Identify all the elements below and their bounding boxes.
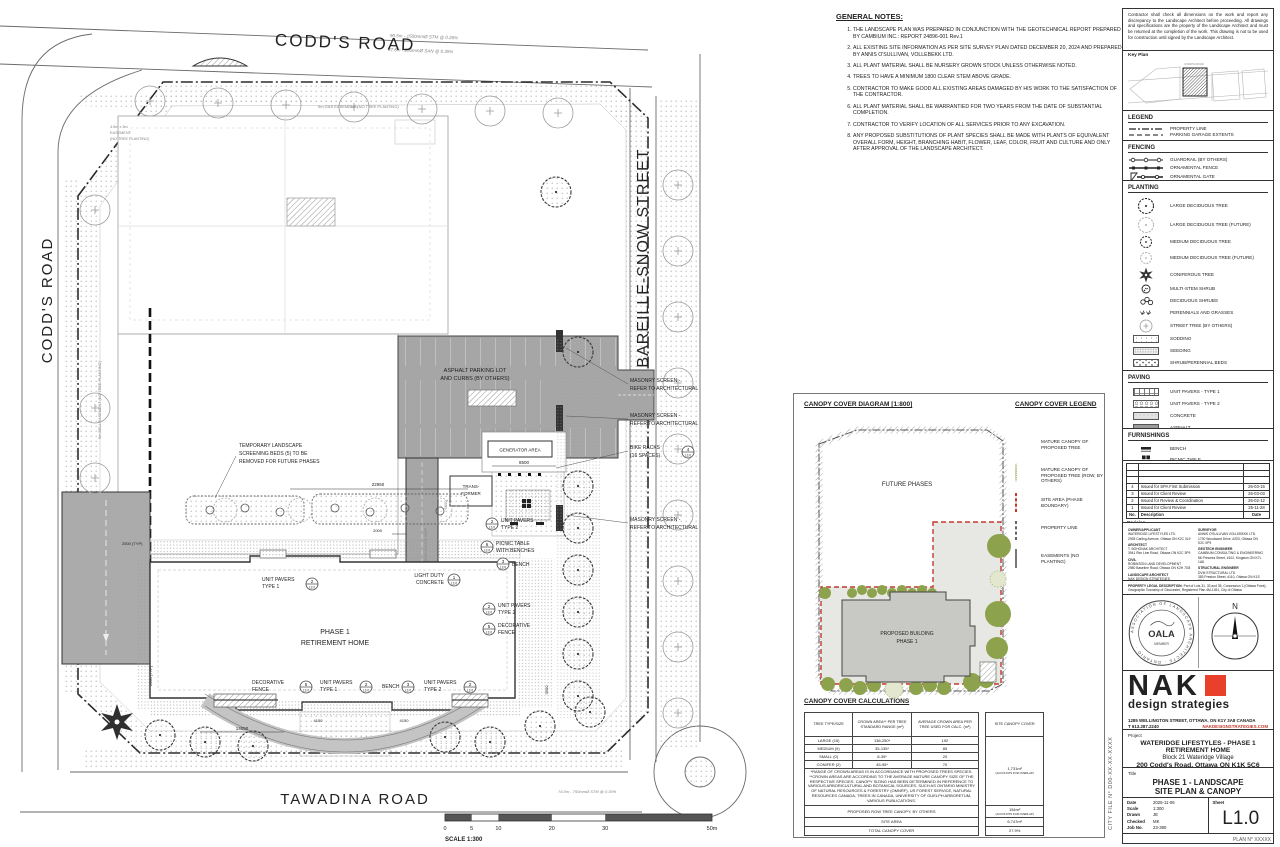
paving-section: PAVING UNIT PAVERS - TYPE 1 UNIT PAVERS … [1123,371,1273,429]
cell: 35-135* [853,745,912,753]
svg-text:L3.0: L3.0 [685,453,691,457]
callout-bubble: 4L3.0 [682,446,694,458]
seal-signature [1150,621,1174,625]
medium-deciduous-tree-icon [1128,235,1164,249]
callout-bubble: 6L3.0 [481,541,493,553]
rev-no: 3 [1127,490,1139,497]
ornamental-fence-icon [1128,164,1164,172]
cell: 136-250* [853,737,912,745]
fencing-label: ORNAMENTAL GATE [1170,174,1215,179]
perennials-grasses-icon [1128,308,1164,317]
project-label: Project [1128,733,1268,738]
large-deciduous-tree-icon [1128,197,1164,215]
site-plan-drawing: ASPHALT PARKING LOT AND CURBS (BY OTHERS… [0,0,795,847]
rev-date: 25-11-28 [1244,504,1270,511]
callout-label: UNIT PAVERS [424,680,457,686]
firm-website: NAKDESIGNSTRATEGIES.COM [1202,724,1268,729]
furnishings-item: BENCH [1128,444,1268,454]
fields-section: Date2025-11-06 Scale1:300 DrawnJE Checke… [1123,798,1273,834]
cell: 70 [911,761,978,769]
svg-text:L3.0: L3.0 [486,610,492,614]
sheet-title-1: PHASE 1 - LANDSCAPE [1128,778,1268,787]
svg-text:L3.0: L3.0 [467,688,473,692]
scale-bar [445,814,712,821]
dim-2000: 2000 [373,528,383,533]
paving-item: CONCRETE [1128,410,1268,422]
note-item: CONTRACTOR TO MAKE GOOD ALL EXISTING ARE… [853,86,1126,100]
callout-bubble: 5L3.0 [483,623,495,635]
street-tree-icon [1128,319,1164,333]
planting-label: LARGE DECIDUOUS TREE [1170,203,1228,208]
fencing-label: GUARDRAIL (BY OTHERS) [1170,157,1227,162]
cell: MEDIUM (9) [805,745,853,753]
consultant-addr: 2980 Baseline Road, Ottawa ON K2H 7G8 [1128,566,1195,570]
bike-label2: (16 SPACES) [630,453,661,459]
general-notes-title: GENERAL NOTES: [836,12,1126,21]
rev-header-desc: Description [1138,511,1243,518]
cell: 192 [911,737,978,745]
furnishings-title: FURNISHINGS [1128,433,1268,441]
callout-label: DECORATIVE [252,680,285,686]
plan-number: PLAN N° XXXXX [1123,834,1273,846]
callout-label: FENCE [498,630,516,636]
key-plan-section: Key Plan CODD'S ROAD [1123,51,1273,111]
svg-text:L3.0: L3.0 [363,688,369,692]
planting-item: MEDIUM DECIDUOUS TREE (FUTURE) [1128,250,1268,266]
planting-item: CONIFEROUS TREE [1128,266,1268,283]
col-header: SITE CANOPY COVER [986,713,1044,737]
north-label: N [1232,602,1238,611]
paving-label: UNIT PAVERS - TYPE 2 [1170,401,1220,406]
city-file-number: CITY FILE N° D00-XX-XX-XXXX [1108,610,1114,830]
dim-2500: 2500 (TYP) [122,541,143,546]
callout-label: TYPE 1 [320,687,337,693]
north-arrow: N [1198,597,1271,668]
svg-text:L3.0: L3.0 [489,525,495,529]
medium-deciduous-tree-future-icon [1128,251,1164,265]
site-area-label: SITE AREA [805,817,979,826]
dim-2500-v: 2500 (TYP) [148,665,153,686]
roundabout-island [685,757,715,787]
note-item: ALL PLANT MATERIAL SHALL BE NURSERY GROW… [853,63,1126,70]
callout-label: WITH BENCHES [496,548,535,554]
paving-label: UNIT PAVERS - TYPE 1 [1170,389,1220,394]
callout-label: BENCH [512,562,530,568]
furnishings-label: BENCH [1170,446,1186,451]
planting-item: LARGE DECIDUOUS TREE [1128,196,1268,215]
planting-item: LARGE DECIDUOUS TREE (FUTURE) [1128,215,1268,234]
sheet-number: L1.0 [1213,808,1270,830]
callout-label: TYPE 1 [262,584,279,590]
multi-stem-shrub-icon [1128,284,1164,294]
rev-desc: Issued for SPA First Submission [1138,483,1243,490]
col-header: AVERAGE CROWN AREA PER TREE USED FOR CAL… [911,713,978,737]
large-deciduous-tree-future-icon [1128,216,1164,234]
general-notes-panel: GENERAL NOTES: THE LANDSCAPE PLAN WAS PR… [836,12,1126,158]
consultant-addr: 2935 Carling Avenue, Ottawa ON K2C 3L9 [1128,537,1195,541]
shrub-beds-swatch [1128,359,1164,367]
planting-label: MEDIUM DECIDUOUS TREE (FUTURE) [1170,255,1254,260]
callout-label: LIGHT DUTY [414,573,444,579]
sheet-title-section: Title PHASE 1 - LANDSCAPE SITE PLAN & CA… [1123,768,1273,798]
masonry-label: MASONRY SCREEN - [630,378,681,384]
callout-bubble: 5L3.0 [300,681,312,693]
planting-item: STREET TREE (BY OTHERS) [1128,318,1268,333]
dim-4150a: 4150 [314,718,324,723]
legend-label: EASEMENTS (NO PLANTING) [1041,550,1103,564]
consultants-section: OWNER/APPLICANT WATERIDGE LIFESTYLES LTD… [1123,523,1273,581]
concrete-swatch [1128,412,1164,420]
legend-label: MATURE CANOPY OF PROPOSED TREE (ROW, BY … [1041,464,1103,484]
consultants-right: SURVEYOR ANNIS O'SULLIVAN VOLLEBEKK LTD.… [1198,526,1268,581]
paving-title: PAVING [1128,375,1268,383]
svg-text:L3.0: L3.0 [303,688,309,692]
planting-item: SEEDING [1128,345,1268,357]
generator-label: GENERATOR AREA [499,448,540,453]
legend-title: LEGEND [1128,115,1268,123]
planting-section: PLANTING LARGE DECIDUOUS TREE LARGE DECI… [1123,181,1273,371]
paving-label: CONCRETE [1170,413,1196,418]
unit-pavers-2-swatch [1128,400,1164,408]
cell: 85 [911,745,978,753]
revision-table: 4 Issued for SPA First Submission 26-03-… [1126,463,1270,519]
rev-date: 26-03-03 [1244,490,1270,497]
firm-address: 1285 WELLINGTON STREET, OTTAWA, ON K1Y 3… [1123,715,1273,730]
gas-easement-note: 5m GAS EASEMENT (NO TREE PLANTING) [318,104,399,109]
temp-label1: TEMPORARY LANDSCAPE [239,443,303,449]
canopy-cover-panel: FUTURE PHASES PROPOSED BUILDING PHASE 1 … [793,393,1105,838]
furnishings-section: FURNISHINGS BENCH PICNIC TABLE [1123,429,1273,461]
legend-label: PARKING GARAGE EXTENTS [1170,132,1234,137]
scale-label: SCALE 1:300 [445,837,483,843]
legend-item: PROPERTY LINE [1015,522,1103,540]
rev-date: 26-03-15 [1244,483,1270,490]
legend-item: PARKING GARAGE EXTENTS [1128,132,1268,138]
planting-label: MEDIUM DECIDUOUS TREE [1170,239,1231,244]
masonry-label2: REFER TO ARCHITECTURAL [630,421,698,427]
planting-label: DECIDUOUS SHRUBS [1170,298,1218,303]
drawing-sheet: ASPHALT PARKING LOT AND CURBS (BY OTHERS… [0,0,1280,847]
rev-date: 26-02-12 [1244,497,1270,504]
title-block: Contractor shall check all dimensions on… [1122,8,1274,844]
planting-label: SEEDING [1170,348,1191,353]
corner-easement-note: (NO TREE PLANTING) [110,137,150,141]
consultant-addr: 3941 Rim Line Road, Ottawa ON K2C 3P9 [1128,551,1195,555]
svg-text:L3.0: L3.0 [451,581,457,585]
rev-desc: Issued for Client Review [1138,504,1243,511]
total-canopy-label: TOTAL CANOPY COVER [805,826,979,835]
legend-item: EASEMENTS (NO PLANTING) [1015,550,1103,568]
svg-text:L3.0: L3.0 [309,585,315,589]
survey-note: 74.0m - 750mmØ STM @ 0.30% [558,789,617,794]
cell: LARGE (15) [805,737,853,745]
street-label-bottom: TAWADINA ROAD [280,791,430,808]
canopy-legend-title: CANOPY COVER LEGEND [1015,401,1097,408]
scale-tick: 50m [707,826,718,832]
street-label-top: CODD'S ROAD [275,31,416,55]
planting-title: PLANTING [1128,185,1268,193]
building-label2: RETIREMENT HOME [301,640,370,647]
masonry-label2: REFER TO ARCHITECTURAL [630,386,698,392]
rev-header-no: No. [1127,511,1139,518]
planting-label: SODDING [1170,336,1191,341]
masonry-label: MASONRY SCREEN - [630,517,681,523]
svg-text:L3.0: L3.0 [405,688,411,692]
callout-bubble: 2L3.0 [464,681,476,693]
canopy-legend: MATURE CANOPY OF PROPOSED TREE MATURE CA… [1015,436,1103,578]
general-notes-list: THE LANDSCAPE PLAN WAS PREPARED IN CONJU… [836,27,1126,153]
job-value: 23-390 [1153,825,1166,831]
mini-building-label2: PHASE 1 [896,639,917,645]
cell: 45-95* [853,761,912,769]
planting-label: CONIFEROUS TREE [1170,272,1214,277]
planting-item: MEDIUM DECIDUOUS TREE [1128,234,1268,250]
callout-label: UNIT PAVERS [262,577,295,583]
masonry-label: MASONRY SCREEN - [630,413,681,419]
callout-label: CONCRETE [416,580,445,586]
svg-text:L3.0: L3.0 [500,565,506,569]
note-item: CONTRACTOR TO VERIFY LOCATION OF ALL SER… [853,122,1126,129]
rev-desc: Issued for Review & Coordination [1138,497,1243,504]
mini-building-label1: PROPOSED BUILDING [880,631,933,637]
bike-label1: BIKE RACKS [630,445,661,451]
ornamental-gate-icon [1128,172,1164,181]
seals-section: ASSOCIATION OF LANDSCAPE ARCHITECTS · ON… [1123,595,1273,671]
seal-acronym: OALA [1148,629,1175,639]
property-line-swatch [1015,522,1035,540]
building-label1: PHASE 1 [320,629,350,636]
planting-label: PERENNIALS AND GRASSES [1170,310,1233,315]
rev-no: 1 [1127,504,1139,511]
dim-22950: 22950 [372,482,385,487]
cell: SMALL (0) [805,753,853,761]
transformer-label1: TRANS- [463,484,480,489]
sheet-label: Sheet [1213,800,1270,805]
fencing-label: ORNAMENTAL FENCE [1170,165,1218,170]
legal-description: PROPERTY LEGAL DESCRIPTION: Part of Lots… [1123,581,1273,595]
temp-label2: SCREENING BEDS (5) TO BE [239,451,308,457]
legend-label: SITE AREA (PHASE BOUNDARY) [1041,494,1103,508]
legend-item: MATURE CANOPY OF PROPOSED TREE (ROW, BY … [1015,464,1103,484]
mature-canopy-swatch [1015,436,1035,454]
paving-item: UNIT PAVERS - TYPE 1 [1128,386,1268,398]
sheet-title-2: SITE PLAN & CANOPY [1128,787,1268,796]
note-item: ALL EXISTING SITE INFORMATION AS PER SIT… [853,45,1126,59]
paving-item: UNIT PAVERS - TYPE 2 [1128,398,1268,410]
bench-icon [1128,445,1164,453]
site-area-swatch [1015,494,1035,512]
callout-label: TYPE 2 [498,610,515,616]
callout-label: UNIT PAVERS [498,603,531,609]
easement-bump [193,58,247,66]
callout-bubble: 2L3.0 [360,681,372,693]
callout-bubble: 3L3.0 [497,558,509,570]
callout-label: UNIT PAVERS [501,518,534,524]
planting-label: MULTI-STEM SHRUB [1170,286,1215,291]
rev-no: 4 [1127,483,1139,490]
key-plan-road-label: CODD'S ROAD [1184,62,1204,66]
legend-item: SITE AREA (PHASE BOUNDARY) [1015,494,1103,512]
dim-4150b: 4150 [400,718,410,723]
mini-building [842,592,975,682]
firm-name: NAK [1128,675,1200,698]
legend-label: PROPERTY LINE [1170,126,1207,131]
legend-section: LEGEND PROPERTY LINE PARKING GARAGE EXTE… [1123,111,1273,141]
planting-item: MULTI-STEM SHRUB [1128,283,1268,295]
row-canopy-label: PROPOSED ROW TREE CANOPY, BY OTHERS [805,805,979,817]
note-item: ALL PLANT MATERIAL SHALL BE WARRANTIED F… [853,104,1126,118]
temp-label3: REMOVED FOR FUTURE PHASES [239,459,320,465]
dim-14050: 14050 [236,726,249,731]
scale-tick: 20 [549,826,555,832]
note-item: TREES TO HAVE A MINIMUM 1800 CLEAR STEM … [853,74,1126,81]
scale-tick: 10 [495,826,501,832]
fencing-item: GUARDRAIL (BY OTHERS) [1128,156,1268,164]
legend-label: PROPERTY LINE [1041,522,1078,531]
planting-item: DECIDUOUS SHRUBS [1128,295,1268,307]
project-name: WATERIDGE LIFESTYLES - PHASE 1 RETIREMEN… [1128,740,1268,754]
fencing-title: FENCING [1128,145,1268,153]
note-item: THE LANDSCAPE PLAN WAS PREPARED IN CONJU… [853,27,1126,41]
cell: 8-35* [853,753,912,761]
callout-label: BENCH [382,684,400,690]
coniferous-tree-icon [1128,267,1164,283]
dim-8500: 8500 [519,460,530,465]
svg-text:L3.0: L3.0 [484,548,490,552]
callout-bubble: 2L3.0 [483,603,495,615]
planting-label: SHRUB/PERENNIAL BEDS [1170,360,1227,365]
legend-item: MATURE CANOPY OF PROPOSED TREE [1015,436,1103,454]
callout-label: PICNIC TABLE [496,541,530,547]
canopy-calc-title: CANOPY COVER CALCULATIONS [804,698,909,705]
row-canopy-swatch [1015,464,1035,482]
unit-pavers-1-swatch [1128,388,1164,396]
legend-label: MATURE CANOPY OF PROPOSED TREE [1041,436,1103,450]
guardrail-icon [1128,156,1164,164]
seal-member: MEMBER [1154,641,1169,645]
note-item: ANY PROPOSED SUBSTITUTIONS OF PLANT SPEC… [853,133,1126,153]
callout-bubble: 1L3.0 [448,574,460,586]
scale-tick: 5 [470,826,473,832]
bell-easement-note: 5m BELL EASEMENT (NO TREE PLANTING) [98,360,102,439]
seeding-swatch [1128,347,1164,355]
key-plan-label: Key Plan [1128,53,1268,58]
cell: 20 [911,753,978,761]
consultant-addr: 1730 Woodward Drive, #203, Ottawa ON K2C… [1198,537,1265,546]
parking-label2: AND CURBS (BY OTHERS) [440,376,509,382]
total-canopy-value: 27.9% [986,826,1044,835]
project-section: Project WATERIDGE LIFESTYLES - PHASE 1 R… [1123,730,1273,768]
callout-label: TYPE 2 [501,525,518,531]
fencing-section: FENCING GUARDRAIL (BY OTHERS) ORNAMENTAL… [1123,141,1273,181]
callout-bubble: 2L3.0 [306,578,318,590]
rev-desc: Issued for Client Review [1138,490,1243,497]
easements-swatch [1015,550,1035,568]
site-canopy-cell: 1,731m² (ACCOUNTS FOR OVERLAP) [986,737,1044,806]
key-plan-site [1183,68,1207,96]
title-label: Title [1128,771,1268,776]
oala-seal: ASSOCIATION OF LANDSCAPE ARCHITECTS · ON… [1125,597,1198,668]
key-plan-map: CODD'S ROAD [1128,59,1268,105]
mini-easement-box [980,662,996,682]
col-header: TREE TYPE/SIZE [805,713,853,737]
firm-logo-square [1205,675,1226,696]
furnishings-item: PICNIC TABLE [1128,454,1268,461]
street-label-right: BAREILLE-SNOW STREET [635,148,652,367]
fencing-item: ORNAMENTAL GATE [1128,172,1268,181]
rev-header-date: Date [1244,511,1270,518]
project-block: Block 21 Wateridge Village [1128,755,1268,761]
firm-logo: NAK design strategies [1123,671,1273,715]
fencing-item: ORNAMENTAL FENCE [1128,164,1268,172]
row-canopy-value: 154m²(ACCOUNTS FOR OVERLAP) [986,805,1044,817]
corner-easement-note: EASEMENT [110,131,132,135]
firm-address-line: 1285 WELLINGTON STREET, OTTAWA, ON K1Y 3… [1128,718,1268,723]
consultants-left: OWNER/APPLICANT WATERIDGE LIFESTYLES LTD… [1128,526,1198,581]
garage-extents-icon [1128,132,1164,138]
planting-label: LARGE DECIDUOUS TREE (FUTURE) [1170,222,1251,227]
consultant-firm: ANNIS O'SULLIVAN VOLLEBEKK LTD. [1198,532,1265,536]
site-area-value: 6,747m² [986,817,1044,826]
callout-bubble: 2L3.0 [486,518,498,530]
rev-no: 2 [1127,497,1139,504]
callout-label: DECORATIVE [498,623,531,629]
scale-tick: 0 [443,826,446,832]
parking-label: ASPHALT PARKING LOT [444,368,507,374]
table-footnote: *RANGE OF CROWN AREAS IS IN ACCORDANCE W… [805,769,979,806]
planting-item: PERENNIALS AND GRASSES [1128,307,1268,318]
corner-easement-note: 4.5m x 5m [110,125,128,129]
col-header: CROWN AREA** PER TREE STANDARD RANGE (m²… [853,713,912,737]
street-label-left: CODD'S ROAD [39,237,56,364]
future-phases-label: FUTURE PHASES [882,482,932,488]
canopy-diagram-title: CANOPY COVER DIAGRAM [1:800] [804,401,912,408]
dim-3500: 3500 [544,685,549,695]
planting-item: SODDING [1128,333,1268,345]
scale-tick: 30 [602,826,608,832]
cell: CONIFER (2) [805,761,853,769]
disclaimer: Contractor shall check all dimensions on… [1123,9,1273,51]
screening-beds [186,494,468,524]
planting-item: SHRUB/PERENNIAL BEDS [1128,357,1268,369]
callout-label: TYPE 2 [424,687,441,693]
callout-label: FENCE [252,687,270,693]
job-label: Job No. [1127,825,1153,831]
firm-tagline: design strategies [1128,699,1268,711]
callout-label: UNIT PAVERS [320,680,353,686]
canopy-calc-table: TREE TYPE/SIZE CROWN AREA** PER TREE STA… [804,712,1044,836]
callout-bubble: 3L3.0 [402,681,414,693]
svg-text:L3.0: L3.0 [486,630,492,634]
paving-item: ASPHALT [1128,422,1268,429]
consultant-addr: 86 Princess Street, #102, Kingston ON K7… [1198,556,1265,565]
masonry-label2: REFER TO ARCHITECTURAL [630,525,698,531]
firm-phone: T 613.287.2240 [1128,724,1159,729]
planting-label: STREET TREE (BY OTHERS) [1170,323,1232,328]
deciduous-shrubs-icon [1128,296,1164,306]
sodding-swatch [1128,335,1164,343]
revision-section: 4 Issued for SPA First Submission 26-03-… [1123,461,1273,523]
overlap-note: (ACCOUNTS FOR OVERLAP) [988,771,1041,775]
